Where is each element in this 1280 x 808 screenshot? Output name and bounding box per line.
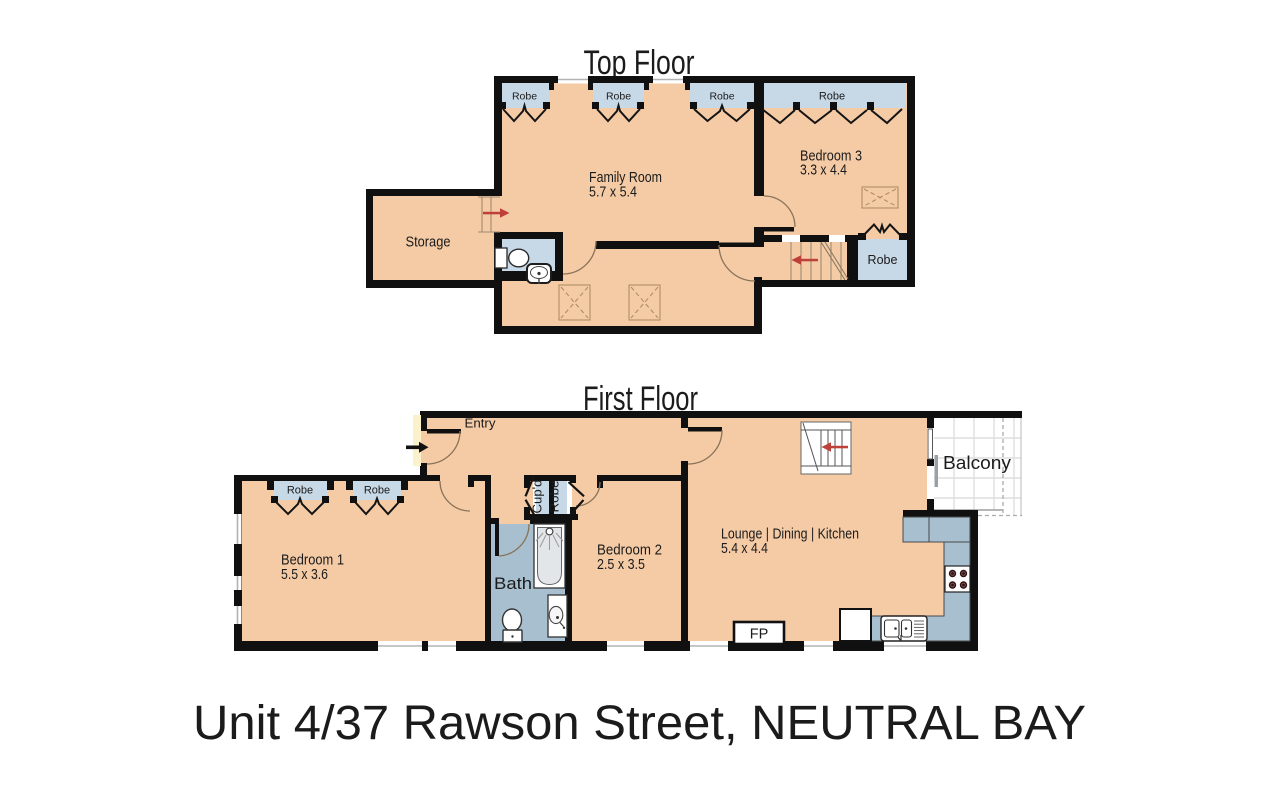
- svg-text:3.3 x 4.4: 3.3 x 4.4: [800, 163, 847, 179]
- svg-text:Robe: Robe: [868, 253, 898, 267]
- svg-text:FP: FP: [750, 627, 769, 643]
- svg-text:5.5 x 3.6: 5.5 x 3.6: [281, 567, 328, 583]
- svg-text:5.7 x 5.4: 5.7 x 5.4: [589, 185, 637, 201]
- svg-text:Cup'd: Cup'd: [531, 479, 545, 513]
- svg-text:5.4 x 4.4: 5.4 x 4.4: [721, 541, 768, 557]
- svg-text:Robe: Robe: [512, 91, 537, 103]
- svg-text:2.5 x 3.5: 2.5 x 3.5: [597, 557, 645, 573]
- svg-text:Robe: Robe: [819, 91, 845, 103]
- svg-text:Robe: Robe: [287, 485, 313, 497]
- svg-text:Robe: Robe: [606, 91, 631, 103]
- svg-text:Robe: Robe: [364, 485, 390, 497]
- svg-text:Entry: Entry: [465, 416, 497, 431]
- svg-text:Robe: Robe: [709, 91, 734, 103]
- svg-text:Balcony: Balcony: [943, 452, 1012, 473]
- svg-text:Robe: Robe: [548, 480, 562, 512]
- svg-text:Storage: Storage: [406, 235, 451, 251]
- svg-text:Unit 4/37 Rawson Street, NEUTR: Unit 4/37 Rawson Street, NEUTRAL BAY: [193, 697, 1086, 750]
- svg-text:Bath: Bath: [494, 575, 532, 593]
